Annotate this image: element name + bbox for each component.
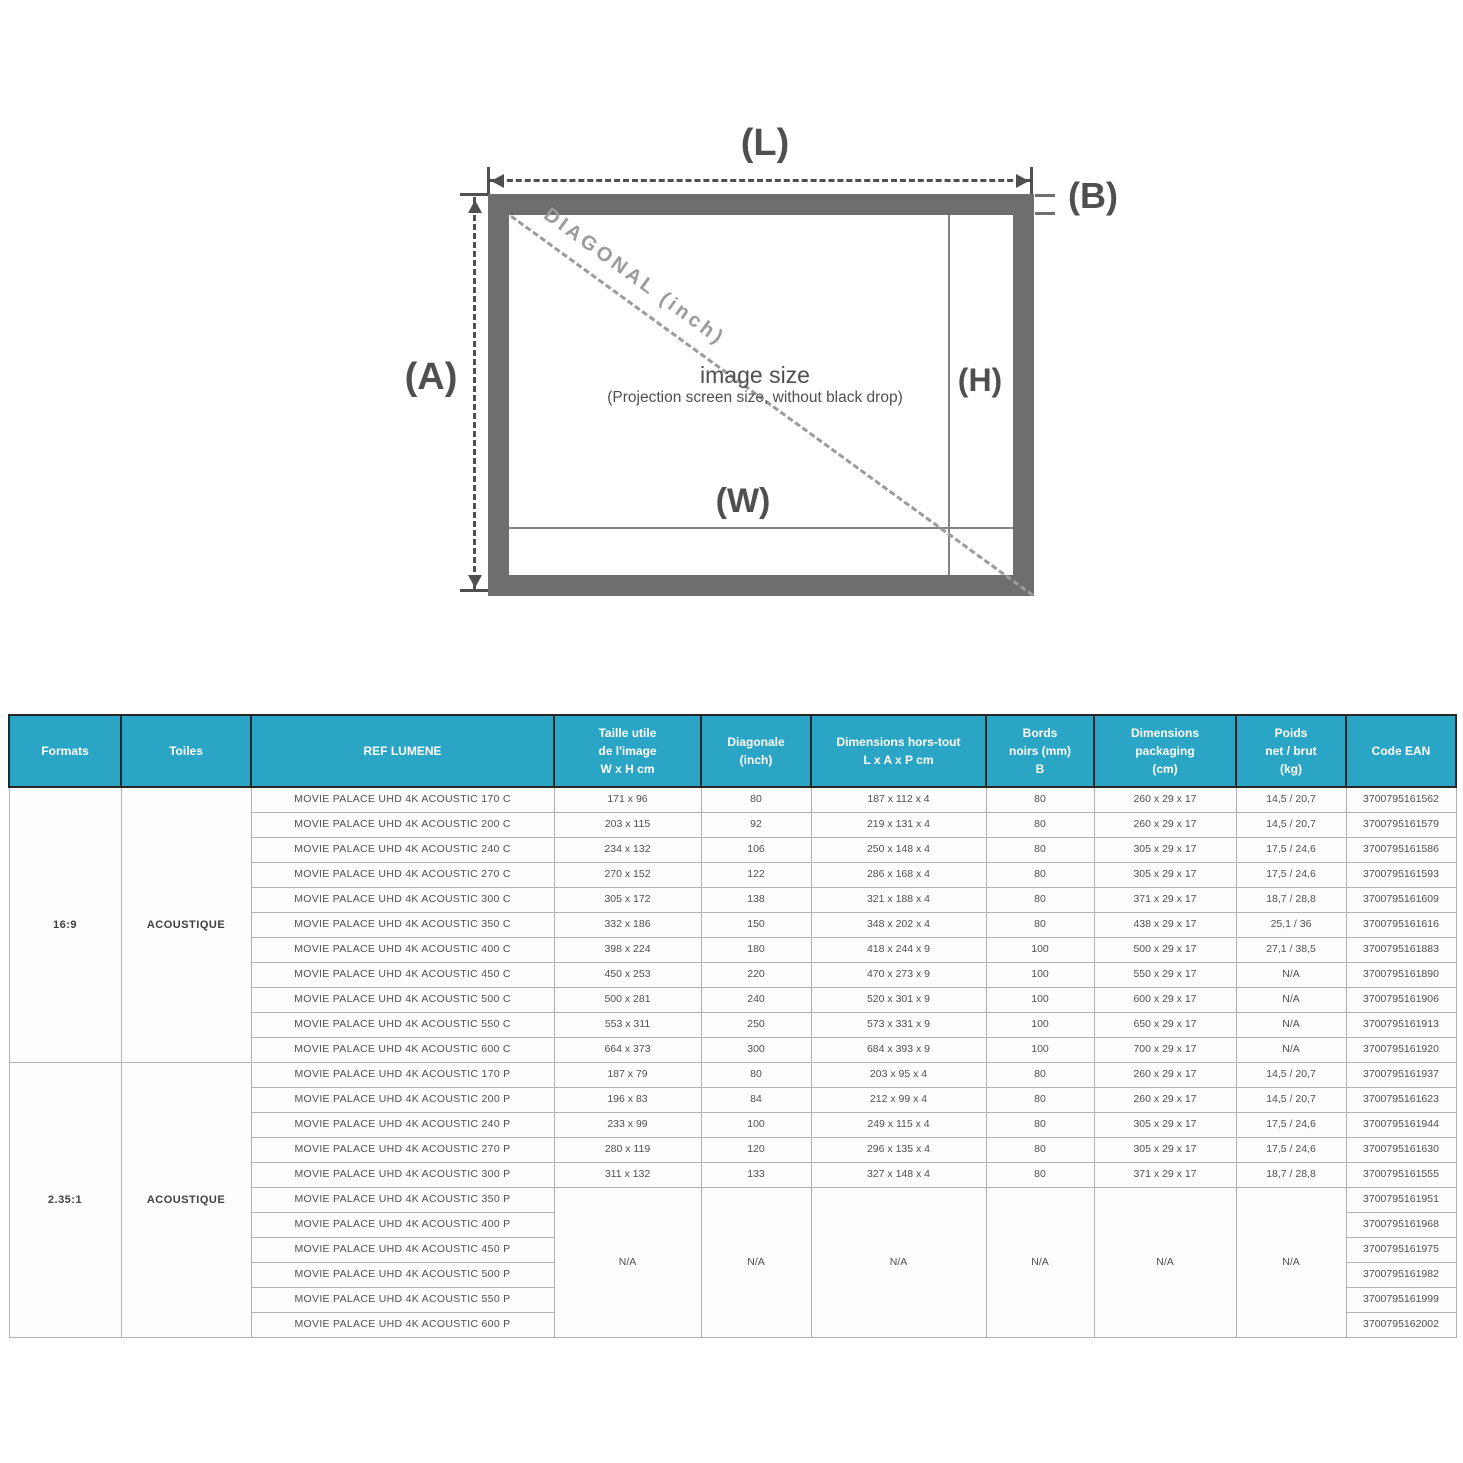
cell-num: 14,5 / 20,7 [1236,787,1346,813]
cell-num: 106 [701,838,811,863]
cell-num: 212 x 99 x 4 [811,1088,986,1113]
cell-num: 80 [986,813,1094,838]
cell-num: 305 x 172 [554,888,701,913]
height-dimension-label: (A) [396,358,466,396]
image-size-title: image size [555,362,955,389]
cell-num: 17,5 / 24,6 [1236,863,1346,888]
column-header: Code EAN [1346,715,1456,787]
cell-ean: 3700795161937 [1346,1063,1456,1088]
cell-num: 600 x 29 x 17 [1094,988,1236,1013]
cell-num: 80 [986,787,1094,813]
cell-num: 260 x 29 x 17 [1094,787,1236,813]
cell-num: 305 x 29 x 17 [1094,1138,1236,1163]
cell-num: 180 [701,938,811,963]
cell-num: 14,5 / 20,7 [1236,1063,1346,1088]
cell-ref: MOVIE PALACE UHD 4K ACOUSTIC 450 C [251,963,554,988]
cell-num: 203 x 115 [554,813,701,838]
cell-num: 550 x 29 x 17 [1094,963,1236,988]
cell-num: 311 x 132 [554,1163,701,1188]
cell-num: 100 [986,938,1094,963]
cell-ref: MOVIE PALACE UHD 4K ACOUSTIC 300 P [251,1163,554,1188]
cell-num: 18,7 / 28,8 [1236,888,1346,913]
cell-num: 25,1 / 36 [1236,913,1346,938]
cell-num: N/A [1094,1188,1236,1338]
cell-ean: 3700795161913 [1346,1013,1456,1038]
cell-ref: MOVIE PALACE UHD 4K ACOUSTIC 400 P [251,1213,554,1238]
cell-num: 14,5 / 20,7 [1236,1088,1346,1113]
cell-num: 187 x 79 [554,1063,701,1088]
cell-num: 18,7 / 28,8 [1236,1163,1346,1188]
datasheet-page: (L) (B) (A) DIAGONAL (inch) image size (… [0,0,1463,1463]
table-header-row: FormatsToilesREF LUMENETaille utile de l… [9,715,1456,787]
cell-ean: 3700795161630 [1346,1138,1456,1163]
cell-ean: 3700795161623 [1346,1088,1456,1113]
table-row: 16:9ACOUSTIQUEMOVIE PALACE UHD 4K ACOUST… [9,787,1456,813]
cell-num: 249 x 115 x 4 [811,1113,986,1138]
cell-num: 500 x 281 [554,988,701,1013]
cell-num: 250 [701,1013,811,1038]
arrow-down-icon [468,575,482,588]
column-header: Formats [9,715,121,787]
cell-num: 371 x 29 x 17 [1094,888,1236,913]
cell-num: 650 x 29 x 17 [1094,1013,1236,1038]
cell-num: 305 x 29 x 17 [1094,863,1236,888]
cell-ref: MOVIE PALACE UHD 4K ACOUSTIC 300 C [251,888,554,913]
cell-num: N/A [811,1188,986,1338]
arrow-right-icon [1016,174,1029,188]
cell-num: 305 x 29 x 17 [1094,838,1236,863]
cell-num: N/A [1236,1188,1346,1338]
cell-num: 100 [986,963,1094,988]
cell-num: 92 [701,813,811,838]
width-dimension-label: (W) [688,484,798,518]
cell-ean: 3700795161982 [1346,1263,1456,1288]
column-header: Diagonale (inch) [701,715,811,787]
cell-num: 233 x 99 [554,1113,701,1138]
cell-ean: 3700795161975 [1346,1238,1456,1263]
cell-num: 371 x 29 x 17 [1094,1163,1236,1188]
cell-ean: 3700795161920 [1346,1038,1456,1063]
length-arrow-line [489,179,1031,182]
cell-num: 150 [701,913,811,938]
cell-ref: MOVIE PALACE UHD 4K ACOUSTIC 350 P [251,1188,554,1213]
cell-num: 684 x 393 x 9 [811,1038,986,1063]
cell-num: 133 [701,1163,811,1188]
cell-num: 100 [986,1013,1094,1038]
length-arrow-cap-left [487,167,490,194]
cell-num: 327 x 148 x 4 [811,1163,986,1188]
cell-num: 332 x 186 [554,913,701,938]
cell-num: 14,5 / 20,7 [1236,813,1346,838]
cell-ean: 3700795161562 [1346,787,1456,813]
cell-num: 27,1 / 38,5 [1236,938,1346,963]
cell-num: 418 x 244 x 9 [811,938,986,963]
cell-num: 17,5 / 24,6 [1236,1138,1346,1163]
cell-num: 80 [986,838,1094,863]
cell-ean: 3700795161883 [1346,938,1456,963]
cell-num: 664 x 373 [554,1038,701,1063]
column-header: Toiles [121,715,251,787]
cell-num: 80 [986,888,1094,913]
column-header: Poids net / brut (kg) [1236,715,1346,787]
cell-num: 500 x 29 x 17 [1094,938,1236,963]
cell-ref: MOVIE PALACE UHD 4K ACOUSTIC 600 P [251,1313,554,1338]
cell-ref: MOVIE PALACE UHD 4K ACOUSTIC 170 C [251,787,554,813]
cell-num: 203 x 95 x 4 [811,1063,986,1088]
cell-num: N/A [1236,988,1346,1013]
cell-num: 300 [701,1038,811,1063]
image-size-subtitle: (Projection screen size, without black d… [515,389,995,407]
cell-ean: 3700795161944 [1346,1113,1456,1138]
cell-ean: 3700795161579 [1346,813,1456,838]
cell-toile: ACOUSTIQUE [121,1063,251,1338]
cell-num: 573 x 331 x 9 [811,1013,986,1038]
cell-num: 17,5 / 24,6 [1236,1113,1346,1138]
cell-ean: 3700795162002 [1346,1313,1456,1338]
cell-fmt: 2.35:1 [9,1063,121,1338]
cell-num: 438 x 29 x 17 [1094,913,1236,938]
cell-num: 100 [701,1113,811,1138]
cell-ref: MOVIE PALACE UHD 4K ACOUSTIC 500 P [251,1263,554,1288]
cell-ref: MOVIE PALACE UHD 4K ACOUSTIC 200 C [251,813,554,838]
cell-ean: 3700795161616 [1346,913,1456,938]
cell-ean: 3700795161951 [1346,1188,1456,1213]
cell-num: 120 [701,1138,811,1163]
cell-num: 80 [986,1138,1094,1163]
cell-ref: MOVIE PALACE UHD 4K ACOUSTIC 170 P [251,1063,554,1088]
table-row: 2.35:1ACOUSTIQUEMOVIE PALACE UHD 4K ACOU… [9,1063,1456,1088]
cell-num: 270 x 152 [554,863,701,888]
cell-ref: MOVIE PALACE UHD 4K ACOUSTIC 550 C [251,1013,554,1038]
height-arrow-line [473,197,476,590]
cell-ean: 3700795161609 [1346,888,1456,913]
cell-num: 196 x 83 [554,1088,701,1113]
border-tick-top [1035,194,1055,197]
cell-ref: MOVIE PALACE UHD 4K ACOUSTIC 240 P [251,1113,554,1138]
cell-num: 80 [986,913,1094,938]
cell-ref: MOVIE PALACE UHD 4K ACOUSTIC 240 C [251,838,554,863]
cell-num: 234 x 132 [554,838,701,863]
cell-num: 100 [986,988,1094,1013]
cell-num: 553 x 311 [554,1013,701,1038]
column-header: Taille utile de l'image W x H cm [554,715,701,787]
cell-num: 305 x 29 x 17 [1094,1113,1236,1138]
cell-num: N/A [1236,963,1346,988]
arrow-left-icon [491,174,504,188]
cell-num: N/A [1236,1038,1346,1063]
cell-ref: MOVIE PALACE UHD 4K ACOUSTIC 400 C [251,938,554,963]
cell-num: 450 x 253 [554,963,701,988]
cell-num: 80 [701,1063,811,1088]
cell-ref: MOVIE PALACE UHD 4K ACOUSTIC 550 P [251,1288,554,1313]
cell-ean: 3700795161906 [1346,988,1456,1013]
cell-num: N/A [554,1188,701,1338]
cell-num: 280 x 119 [554,1138,701,1163]
cell-ean: 3700795161555 [1346,1163,1456,1188]
cell-num: 80 [986,1113,1094,1138]
cell-num: 80 [986,1088,1094,1113]
arrow-up-icon [468,200,482,213]
cell-num: 220 [701,963,811,988]
cell-num: 286 x 168 x 4 [811,863,986,888]
cell-ref: MOVIE PALACE UHD 4K ACOUSTIC 600 C [251,1038,554,1063]
cell-ean: 3700795161593 [1346,863,1456,888]
cell-num: 138 [701,888,811,913]
column-header: Bords noirs (mm) B [986,715,1094,787]
column-header: REF LUMENE [251,715,554,787]
height-arrow-cap-bottom [460,589,488,592]
product-spec-table: FormatsToilesREF LUMENETaille utile de l… [8,714,1457,1338]
cell-num: 470 x 273 x 9 [811,963,986,988]
column-header: Dimensions packaging (cm) [1094,715,1236,787]
cell-ref: MOVIE PALACE UHD 4K ACOUSTIC 270 P [251,1138,554,1163]
border-tick-bottom [1035,212,1055,215]
cell-ref: MOVIE PALACE UHD 4K ACOUSTIC 200 P [251,1088,554,1113]
cell-num: 260 x 29 x 17 [1094,1063,1236,1088]
cell-num: N/A [986,1188,1094,1338]
cell-num: 80 [986,863,1094,888]
cell-ref: MOVIE PALACE UHD 4K ACOUSTIC 350 C [251,913,554,938]
cell-ref: MOVIE PALACE UHD 4K ACOUSTIC 500 C [251,988,554,1013]
cell-num: 260 x 29 x 17 [1094,1088,1236,1113]
cell-num: 321 x 188 x 4 [811,888,986,913]
cell-ean: 3700795161586 [1346,838,1456,863]
cell-num: 80 [701,787,811,813]
height-arrow-cap-top [460,193,488,196]
column-header: Dimensions hors-tout L x A x P cm [811,715,986,787]
length-dimension-label: (L) [700,124,830,162]
cell-num: 296 x 135 x 4 [811,1138,986,1163]
cell-num: 250 x 148 x 4 [811,838,986,863]
cell-num: 122 [701,863,811,888]
image-height-label: (H) [948,364,1012,396]
cell-ean: 3700795161890 [1346,963,1456,988]
cell-num: 398 x 224 [554,938,701,963]
cell-num: 80 [986,1163,1094,1188]
cell-num: 187 x 112 x 4 [811,787,986,813]
cell-num: 520 x 301 x 9 [811,988,986,1013]
cell-num: 219 x 131 x 4 [811,813,986,838]
cell-num: N/A [1236,1013,1346,1038]
length-arrow-cap-right [1030,167,1033,194]
cell-num: 84 [701,1088,811,1113]
cell-ref: MOVIE PALACE UHD 4K ACOUSTIC 270 C [251,863,554,888]
cell-num: 348 x 202 x 4 [811,913,986,938]
cell-num: 260 x 29 x 17 [1094,813,1236,838]
cell-toile: ACOUSTIQUE [121,787,251,1063]
cell-ean: 3700795161999 [1346,1288,1456,1313]
border-dimension-label: (B) [1053,178,1133,214]
cell-num: 100 [986,1038,1094,1063]
cell-ref: MOVIE PALACE UHD 4K ACOUSTIC 450 P [251,1238,554,1263]
cell-ean: 3700795161968 [1346,1213,1456,1238]
cell-num: 17,5 / 24,6 [1236,838,1346,863]
cell-num: 240 [701,988,811,1013]
cell-num: 171 x 96 [554,787,701,813]
cell-num: 700 x 29 x 17 [1094,1038,1236,1063]
cell-num: N/A [701,1188,811,1338]
cell-num: 80 [986,1063,1094,1088]
cell-fmt: 16:9 [9,787,121,1063]
